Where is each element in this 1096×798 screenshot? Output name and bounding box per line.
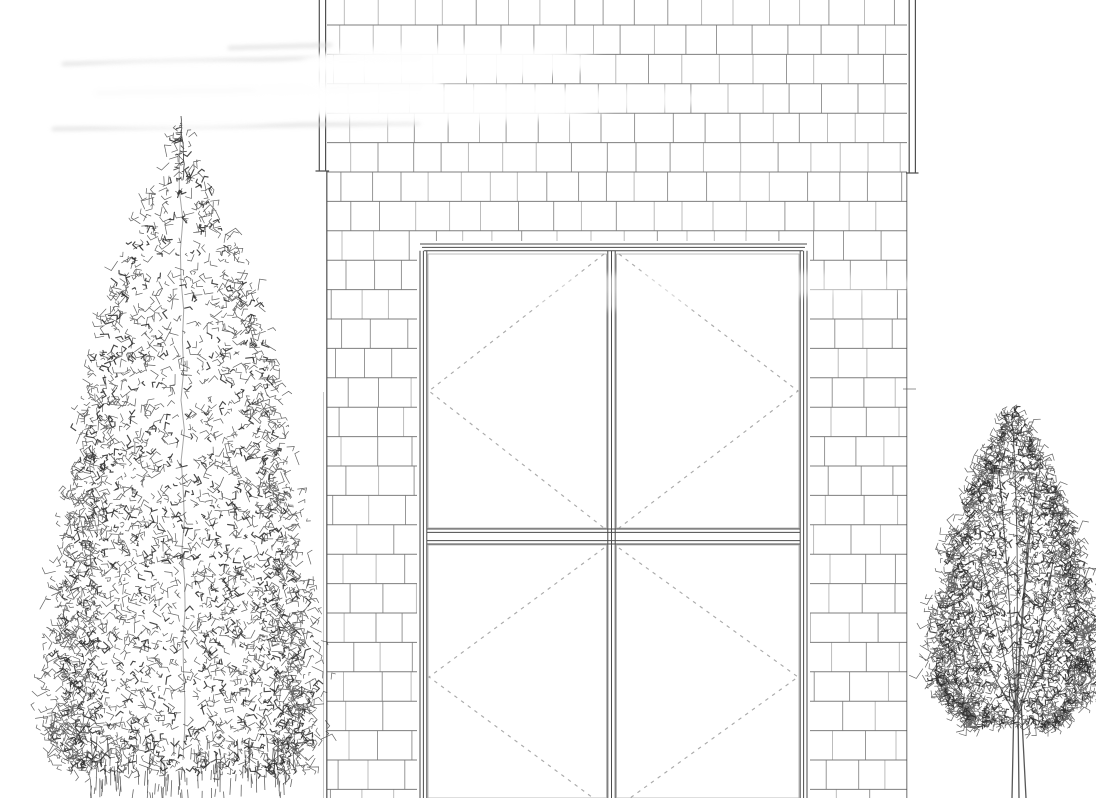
left-conifer-tree [31, 116, 336, 798]
casement-window [417, 241, 810, 798]
elevation-canvas [0, 0, 1096, 798]
right-tree [909, 405, 1096, 798]
elevation-svg [0, 0, 1096, 798]
